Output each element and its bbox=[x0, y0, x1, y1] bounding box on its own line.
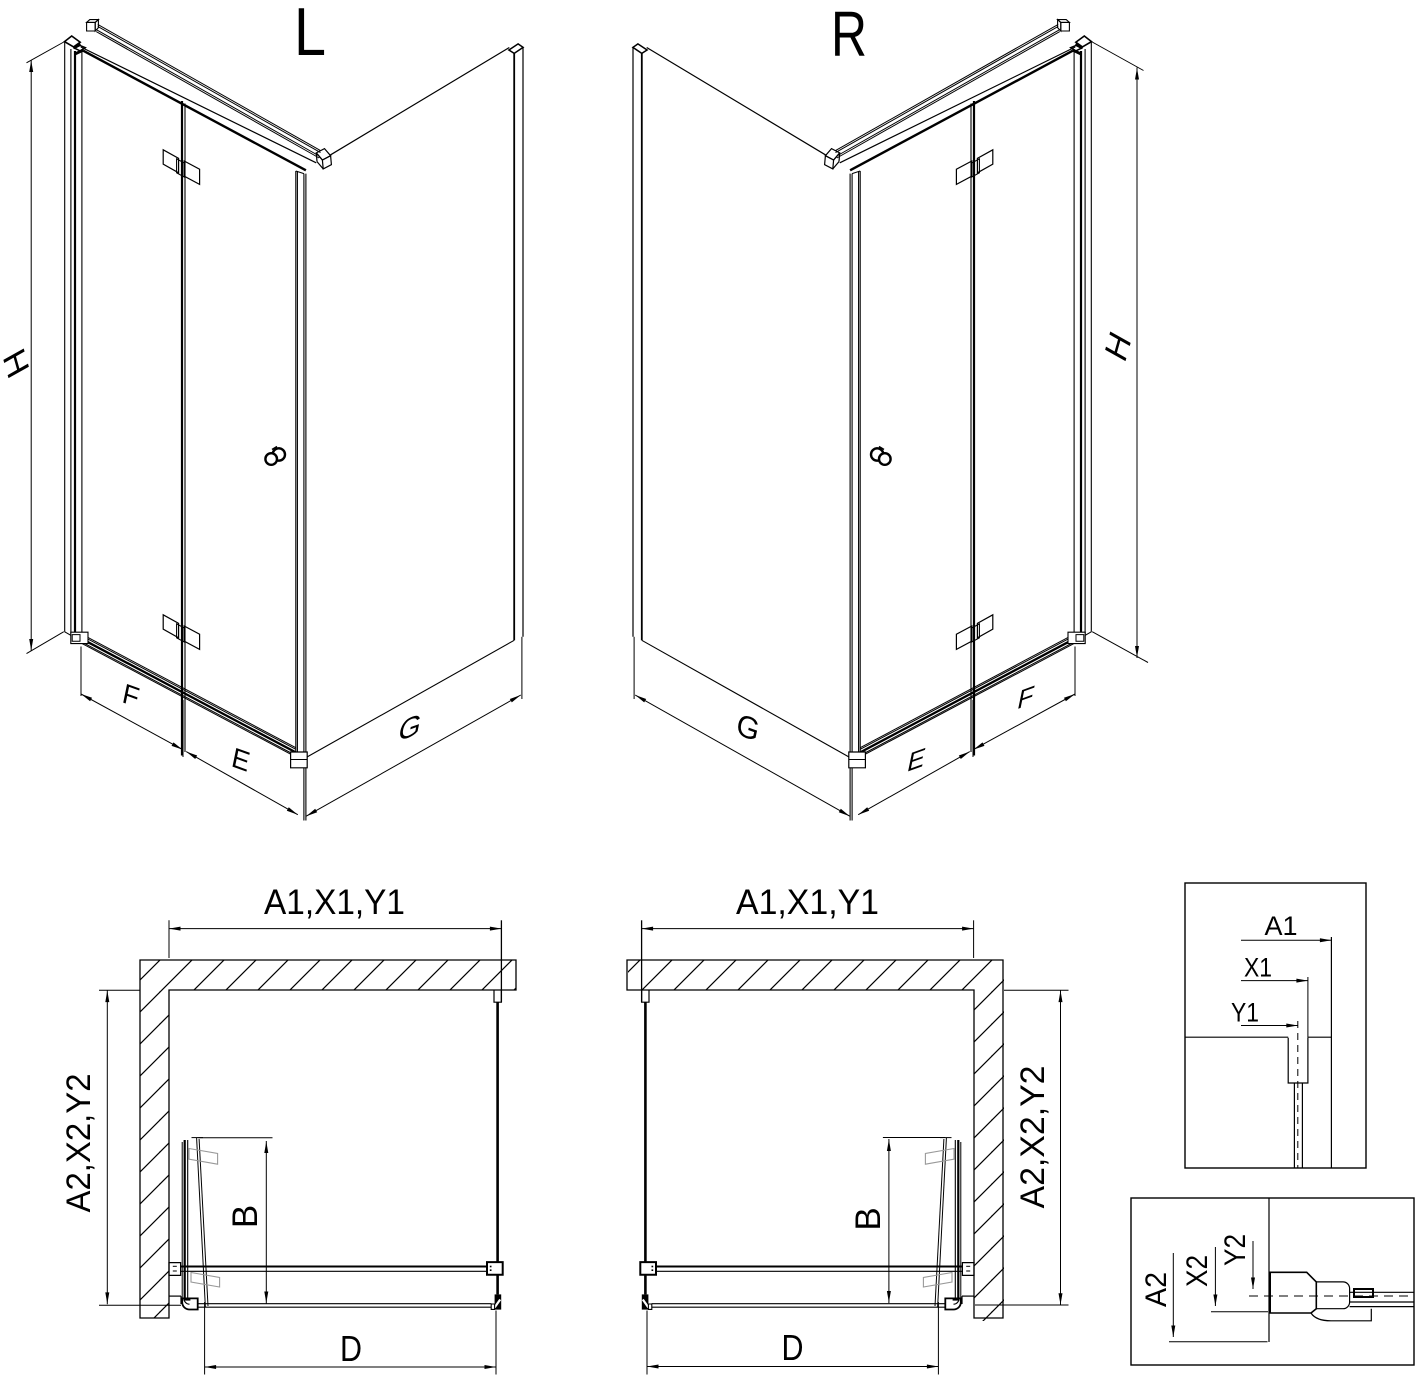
svg-text:R: R bbox=[831, 0, 867, 70]
svg-text:A2,X2,Y2: A2,X2,Y2 bbox=[60, 1074, 98, 1213]
svg-text:B: B bbox=[226, 1205, 265, 1228]
svg-text:Y2: Y2 bbox=[1219, 1234, 1252, 1266]
svg-text:A1,X1,Y1: A1,X1,Y1 bbox=[736, 883, 879, 922]
svg-text:A2: A2 bbox=[1140, 1272, 1173, 1307]
svg-text:D: D bbox=[782, 1327, 804, 1368]
svg-text:A1: A1 bbox=[1265, 911, 1298, 941]
svg-text:D: D bbox=[340, 1328, 362, 1369]
svg-text:X2: X2 bbox=[1181, 1255, 1214, 1287]
svg-text:L: L bbox=[294, 0, 326, 70]
svg-text:Y1: Y1 bbox=[1231, 998, 1259, 1028]
svg-text:B: B bbox=[849, 1207, 888, 1230]
svg-text:A1,X1,Y1: A1,X1,Y1 bbox=[264, 883, 405, 922]
svg-text:X1: X1 bbox=[1244, 953, 1272, 983]
svg-text:A2,X2,Y2: A2,X2,Y2 bbox=[1014, 1066, 1052, 1209]
